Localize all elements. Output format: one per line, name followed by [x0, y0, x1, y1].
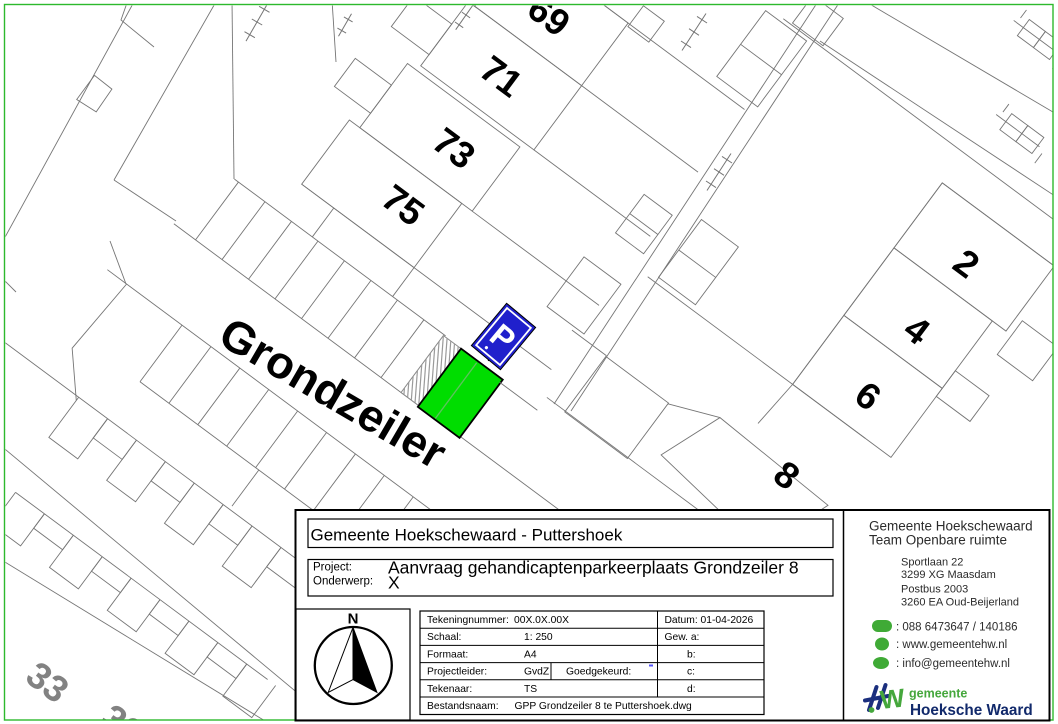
svg-text:Postbus 2003: Postbus 2003	[901, 584, 968, 596]
svg-text:Tekenaar:: Tekenaar:	[427, 684, 472, 695]
svg-text:Project:: Project:	[313, 562, 352, 574]
svg-text:Bestandsnaam:: Bestandsnaam:	[427, 701, 499, 712]
svg-text:3299 XG Maasdam: 3299 XG Maasdam	[901, 569, 996, 581]
svg-text:Team Openbare ruimte: Team Openbare ruimte	[869, 533, 1007, 548]
svg-text:Tekeningnummer:: Tekeningnummer:	[427, 615, 509, 626]
svg-text:Gemeente Hoekschewaard - Putte: Gemeente Hoekschewaard - Puttershoek	[311, 526, 623, 545]
svg-text:3260 EA Oud-Beijerland: 3260 EA Oud-Beijerland	[901, 597, 1019, 609]
svg-text:Schaal:: Schaal:	[427, 632, 461, 643]
svg-text:N: N	[348, 611, 359, 628]
svg-text:GPP Grondzeiler 8 te Puttersho: GPP Grondzeiler 8 te Puttershoek.dwg	[515, 701, 693, 712]
svg-text:c:: c:	[687, 667, 695, 678]
svg-text:: 088 6473647 / 140186: : 088 6473647 / 140186	[896, 622, 1018, 634]
svg-text:Datum: 01-04-2026: Datum: 01-04-2026	[665, 615, 754, 626]
svg-text:: www.gemeentehw.nl: : www.gemeentehw.nl	[896, 639, 1007, 651]
svg-text:GvdZ: GvdZ	[524, 667, 549, 678]
svg-text:b:: b:	[687, 649, 696, 660]
svg-text:Projectleider:: Projectleider:	[427, 667, 487, 678]
svg-text:Gemeente Hoekschewaard: Gemeente Hoekschewaard	[869, 519, 1033, 534]
svg-text:: info@gemeentehw.nl: : info@gemeentehw.nl	[896, 658, 1010, 670]
svg-text:d:: d:	[687, 684, 696, 695]
svg-text:Formaat:: Formaat:	[427, 649, 468, 660]
svg-text:A4: A4	[524, 649, 537, 660]
svg-text:1: 250: 1: 250	[524, 632, 553, 643]
svg-text:TS: TS	[524, 684, 537, 695]
svg-text:Hoeksche Waard: Hoeksche Waard	[910, 702, 1033, 719]
svg-text:00X.0X.00X: 00X.0X.00X	[514, 615, 569, 626]
svg-text:Onderwerp:: Onderwerp:	[313, 576, 373, 588]
svg-text:Goedgekeurd:: Goedgekeurd:	[566, 667, 631, 678]
svg-text:W: W	[878, 683, 906, 715]
svg-text:gemeente: gemeente	[909, 687, 967, 701]
svg-text:Sportlaan 22: Sportlaan 22	[901, 557, 963, 569]
svg-text:Aanvraag gehandicaptenparkeerp: Aanvraag gehandicaptenparkeerplaats Gron…	[388, 558, 799, 578]
svg-text:X: X	[388, 573, 400, 593]
svg-text:Gew. a:: Gew. a:	[665, 632, 700, 643]
